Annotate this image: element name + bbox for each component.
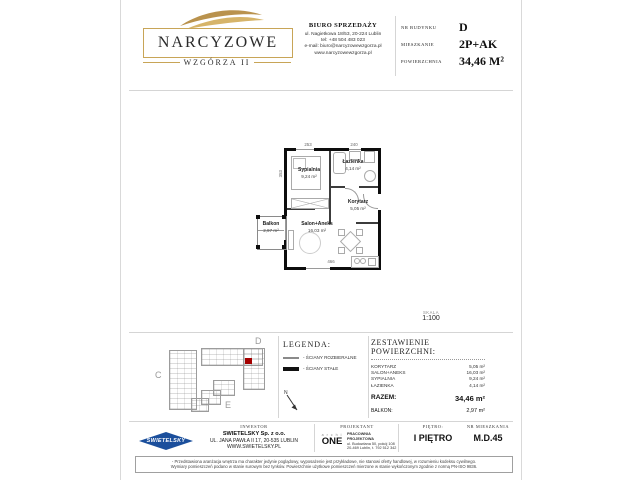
interior-wall	[329, 188, 331, 224]
sales-office-email: e-mail: biuro@narcyzowewzgorza.pl	[293, 44, 393, 50]
balcony-post	[256, 245, 260, 249]
window-line	[349, 149, 361, 150]
entrance-opening	[378, 194, 381, 210]
flyer-page: NARCYZOWE WZGÓRZA II BIURO SPRZEDAŻY ul.…	[120, 0, 522, 480]
summary-row-label: ŁAZIENKA	[371, 383, 394, 389]
legend-item: - ŚCIANY STAŁE	[283, 366, 365, 371]
chair	[338, 247, 345, 254]
sales-office-title: BIURO SPRZEDAŻY	[293, 22, 393, 29]
room-area: 2,97 m²	[257, 228, 285, 233]
brand-logo: NARCYZOWE	[143, 28, 293, 58]
sales-office-website: www.narcyzowewzgorza.pl	[293, 51, 393, 57]
balcony-post	[282, 215, 286, 219]
footer-divider	[314, 424, 315, 452]
brand-subtitle: WZGÓRZA II	[184, 58, 251, 67]
brand-subtitle-row: WZGÓRZA II	[143, 58, 291, 67]
room-label-sypialnia: Sypialnia 9,24 m²	[291, 168, 327, 179]
interior-wall	[329, 151, 331, 188]
wardrobe	[291, 198, 329, 209]
building-row: NR BUDYNKU D	[401, 20, 513, 37]
room-area: 16,03 m²	[297, 228, 337, 233]
washing-machine	[364, 170, 376, 182]
sales-office-block: BIURO SPRZEDAŻY ul. Nagietkowa 18/53, 20…	[293, 22, 393, 57]
burner	[360, 258, 366, 264]
summary-total-label: RAZEM:	[371, 394, 396, 403]
designer-info: PRACOWNIA PROJEKTOWA ul. Budowlana 50, p…	[347, 432, 397, 451]
investor-label: INWESTOR	[195, 424, 313, 429]
room-area: 5,05 m²	[341, 206, 375, 211]
investor-website: WWW.SWIETELSKY.PL	[195, 444, 313, 450]
chair	[338, 229, 345, 236]
room-label-balkon: Balkon 2,97 m²	[257, 222, 285, 233]
legend-item-label: - ŚCIANY STAŁE	[303, 366, 338, 371]
building-d-wing-shape	[243, 348, 265, 390]
unit-info-block: NR BUDYNKU D MIESZKANIE 2P+AK POWIERZCHN…	[401, 20, 513, 71]
header-divider	[395, 16, 396, 76]
building-d-label: D	[255, 336, 262, 346]
swietelsky-logo: SWIETELSKY	[139, 432, 193, 450]
room-label-salon: Salon+Aneks 16,03 m²	[297, 222, 337, 233]
disclaimer-line: Wymiary pomieszczeń podano w stanie suro…	[140, 464, 508, 469]
kitchen-sink	[368, 258, 376, 266]
legend-block: LEGENDA: - ŚCIANY ROZBIERALNE - ŚCIANY S…	[283, 340, 365, 371]
chair	[356, 229, 363, 236]
building-c-label: C	[155, 370, 162, 380]
scale-block: SKALA 1:100	[414, 310, 448, 322]
area-summary-block: ZESTAWIENIE POWIERZCHNI: KORYTARZ 5,05 m…	[371, 338, 485, 414]
dimension-label: 466	[313, 259, 349, 264]
north-letter: N	[284, 390, 288, 396]
legend-item-label: - ŚCIANY ROZBIERALNE	[303, 355, 357, 360]
section-rule	[129, 332, 513, 333]
room-name: Salon+Aneks	[297, 222, 337, 228]
floor-plan: 253 240 466 353 Sypialnia 9,24 m² Łazien…	[251, 142, 397, 280]
window-line	[306, 268, 330, 269]
interior-wall	[359, 186, 378, 188]
dimension-label: 240	[339, 142, 369, 147]
apartment-row: MIESZKANIE 2P+AK	[401, 37, 513, 54]
summary-total-value: 34,46 m²	[455, 394, 485, 403]
tv-cabinet	[288, 230, 294, 250]
summary-balcony-label: BALKON:	[371, 408, 393, 414]
building-e-label: E	[225, 400, 231, 410]
summary-row: ŁAZIENKA 4,14 m²	[371, 383, 485, 389]
header-rule	[129, 90, 513, 91]
summary-balcony-value: 2,97 m²	[466, 408, 485, 414]
footer-divider	[398, 424, 399, 452]
area-row: POWIERZCHNIA 34,46 M²	[401, 54, 513, 71]
designer-label: PROJEKTANT	[317, 424, 397, 429]
floor-value: I PIĘTRO	[403, 433, 463, 443]
building-e-shape	[191, 398, 209, 412]
apartment-number-value: M.D.45	[463, 433, 513, 443]
highlighted-apartment-marker	[245, 358, 252, 364]
one-text: ONE	[319, 437, 345, 446]
archione-logo: a r c h i ONE	[319, 433, 345, 446]
interior-wall	[331, 186, 345, 188]
area-label: POWIERZCHNIA	[401, 59, 442, 64]
swietelsky-logo-text: SWIETELSKY	[147, 438, 186, 444]
apartment-number-label: NR MIESZKANIA	[463, 424, 513, 429]
scale-value: 1:100	[414, 315, 448, 322]
investor-info: SWIETELSKY Sp. z o.o. UL. JANA PAWŁA II …	[195, 431, 313, 451]
removable-wall-swatch	[283, 357, 299, 359]
disclaimer-box: - Przedstawiona aranżacja wnętrza ma cha…	[135, 456, 513, 473]
balcony-post	[282, 245, 286, 249]
floor-label: PIĘTRO:	[403, 424, 463, 429]
rug	[299, 232, 321, 254]
north-arrow: N	[284, 392, 302, 419]
balcony-post	[256, 215, 260, 219]
room-area: 4,14 m²	[335, 166, 371, 171]
summary-total-row: RAZEM: 34,46 m²	[371, 394, 485, 403]
summary-row-value: 4,14 m²	[469, 383, 485, 389]
bottom-divider	[278, 336, 279, 418]
legend-title: LEGENDA:	[283, 340, 365, 349]
site-keyplan: C D E	[151, 340, 271, 416]
dimension-label: 253	[293, 142, 323, 147]
chair	[356, 247, 363, 254]
room-area: 9,24 m²	[291, 174, 327, 179]
room-label-korytarz: Korytarz 5,05 m²	[341, 200, 375, 211]
brand-title: NARCYZOWE	[158, 34, 278, 51]
legend-item: - ŚCIANY ROZBIERALNE	[283, 355, 365, 360]
summary-balcony-row: BALKON: 2,97 m²	[371, 408, 485, 414]
building-label: NR BUDYNKU	[401, 25, 437, 30]
window-line	[296, 149, 314, 150]
dimension-label: 353	[278, 170, 283, 177]
permanent-wall-swatch	[283, 367, 299, 371]
building-value: D	[459, 20, 468, 35]
interior-wall	[356, 222, 378, 224]
area-value: 34,46 M²	[459, 54, 504, 69]
footer-rule	[129, 421, 513, 422]
investor-name: SWIETELSKY Sp. z o.o.	[195, 431, 313, 438]
apartment-label: MIESZKANIE	[401, 42, 434, 47]
gold-swoosh-icon	[176, 8, 266, 30]
summary-title: ZESTAWIENIE POWIERZCHNI:	[371, 338, 485, 360]
bottom-divider	[368, 336, 369, 418]
designer-line: PRACOWNIA PROJEKTOWA	[347, 432, 397, 442]
designer-line: 20-469 Lublin, t. 792 512 342	[347, 446, 397, 451]
apartment-value: 2P+AK	[459, 37, 497, 52]
room-label-lazienka: Łazienka 4,14 m²	[335, 160, 371, 171]
